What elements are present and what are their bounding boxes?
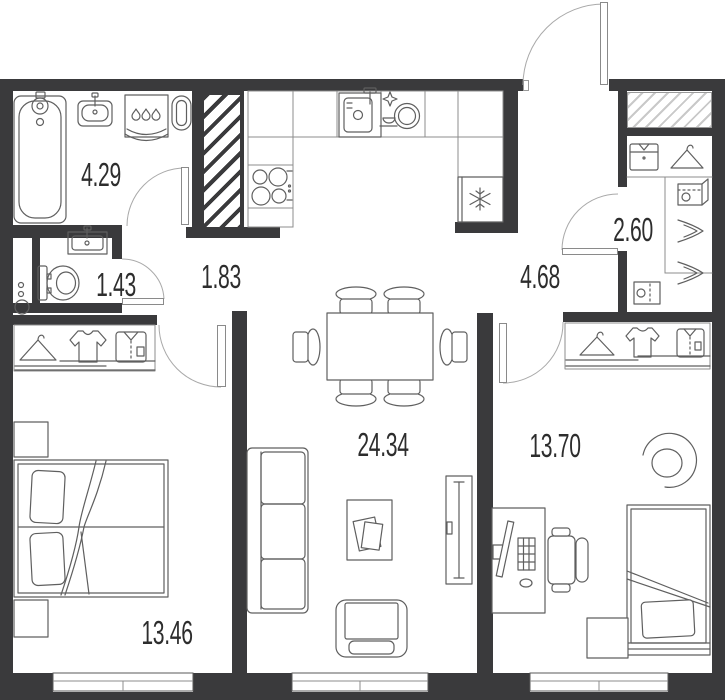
double-bed-icon xyxy=(14,460,168,597)
kitchen-sink-icon xyxy=(339,88,381,137)
hanger-icon xyxy=(671,145,703,168)
entry-door-frame xyxy=(523,80,529,91)
room-label-bathroom: 4.29 xyxy=(81,156,121,194)
room-label-entry-hall: 4.68 xyxy=(520,258,560,296)
sink-icon xyxy=(68,226,107,254)
room2-door-leaf xyxy=(499,323,507,383)
bathroom-door-leaf xyxy=(181,167,189,225)
sofa-icon xyxy=(247,448,308,613)
window xyxy=(292,673,428,691)
folded-shirt-icon xyxy=(630,144,658,170)
window xyxy=(53,673,193,691)
shoe-cabinet-icon xyxy=(634,282,660,304)
wardrobe-door-arc xyxy=(562,194,618,250)
tshirt-icon xyxy=(70,331,106,362)
pipe-riser-icon xyxy=(15,283,29,315)
dishwasher-icon xyxy=(380,92,420,129)
hanger-icon xyxy=(20,335,56,360)
room-label-hall: 1.83 xyxy=(201,258,241,296)
single-bed-icon xyxy=(627,505,710,655)
room-label-bedroom-left: 13.46 xyxy=(141,614,192,652)
snowflake-icon xyxy=(470,188,490,210)
room-label-bedroom-right: 13.70 xyxy=(529,427,580,465)
toilet-icon xyxy=(38,266,79,300)
coffee-table-icon xyxy=(347,500,392,560)
chair-icon xyxy=(384,379,424,406)
furniture-layer xyxy=(0,0,725,700)
chair-icon xyxy=(384,287,424,314)
washbasin-icon xyxy=(78,93,112,126)
chair-icon xyxy=(336,379,376,406)
shoes-icon xyxy=(678,220,703,242)
kitchen-counter xyxy=(248,91,503,227)
dining-table-icon xyxy=(327,313,433,380)
bedroom-door-leaf xyxy=(217,325,226,387)
chair-icon xyxy=(293,329,320,365)
room2-door-arc xyxy=(503,322,563,383)
floor-plan: 4.29 1.43 1.83 4.68 2.60 24.34 13.70 13.… xyxy=(0,0,725,700)
nightstand xyxy=(14,422,48,457)
armchair-icon xyxy=(336,600,407,657)
wardrobe-bedroom xyxy=(14,325,155,371)
shirt-icon xyxy=(677,329,704,357)
wardrobe-door-leaf xyxy=(562,248,618,255)
box-icon xyxy=(678,179,708,205)
bathtub-icon xyxy=(14,92,66,223)
entry-door-leaf xyxy=(600,2,608,85)
hanger-icon xyxy=(580,332,614,355)
chair-icon xyxy=(336,287,376,314)
nightstand xyxy=(14,600,48,637)
washing-machine-icon xyxy=(125,95,168,141)
bathroom-door-arc xyxy=(127,168,185,226)
tshirt-icon xyxy=(626,328,659,357)
room-label-wardrobe: 2.60 xyxy=(613,211,653,249)
side-table-icon xyxy=(587,618,628,658)
fridge-icon xyxy=(458,177,503,222)
hob-icon xyxy=(252,168,292,205)
towel-rail-icon xyxy=(172,96,191,130)
shirt-icon xyxy=(116,332,146,362)
window xyxy=(530,673,668,691)
room-label-living-kitchen: 24.34 xyxy=(357,426,408,464)
desk-icon xyxy=(492,508,545,613)
chair-icon xyxy=(440,329,467,365)
entry-door-arc xyxy=(523,4,604,85)
wardrobe-room2 xyxy=(565,323,710,369)
room-label-wc: 1.43 xyxy=(96,266,136,304)
round-chair-icon xyxy=(643,433,696,487)
tv-stand-icon xyxy=(446,476,472,584)
bedroom-door-arc xyxy=(159,325,221,387)
dining-set xyxy=(293,287,467,406)
office-chair-icon xyxy=(548,528,588,592)
